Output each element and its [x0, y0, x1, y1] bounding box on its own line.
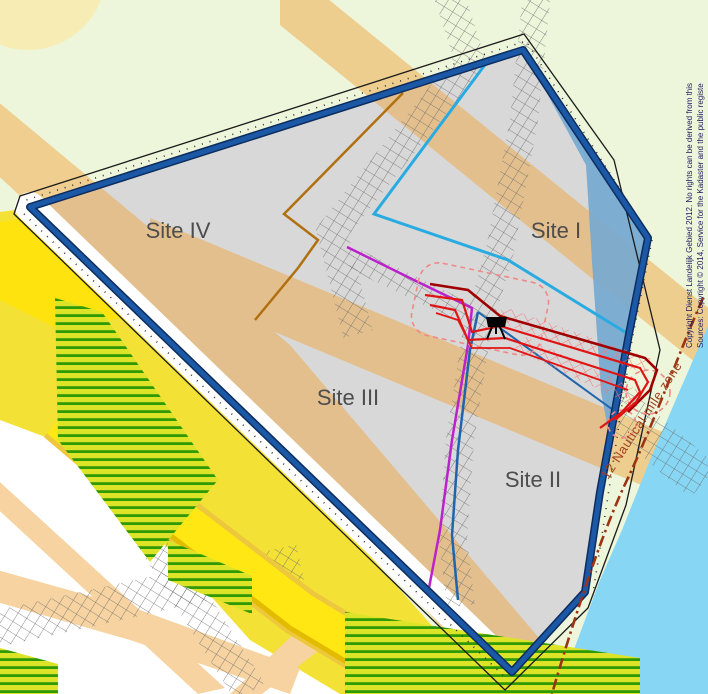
site-iv-label: Site IV: [146, 218, 211, 243]
site-i-label: Site I: [531, 218, 581, 243]
credit-line-1: Sources: Copyright © 2014, Service for t…: [696, 83, 705, 348]
map-svg: Site IV Site I Site III Site II 12 Nauti…: [0, 0, 708, 694]
site-iii-label: Site III: [317, 385, 379, 410]
site-ii-label: Site II: [505, 467, 561, 492]
map-canvas[interactable]: Site IV Site I Site III Site II 12 Nauti…: [0, 0, 708, 694]
credit-line-2: Copyright Dienst Landelijk Gebied 2012. …: [685, 83, 694, 348]
